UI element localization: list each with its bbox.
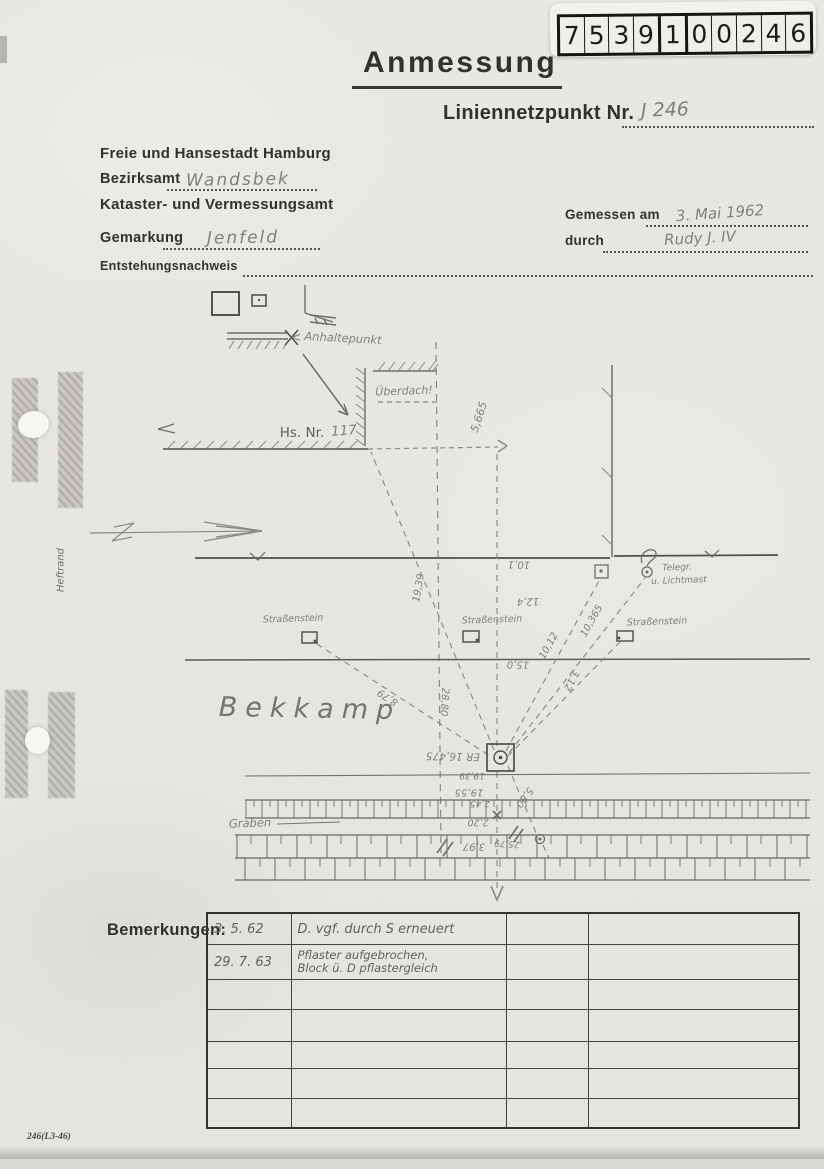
tape-strip [48,692,75,798]
table-row [207,1041,799,1068]
table-row [207,1098,799,1128]
graben-label: Graben [229,815,272,830]
house-number-label: Hs. Nr. [280,425,324,441]
dotted-line [243,261,813,277]
measurement: 10,12 [537,631,561,661]
measurement: 15,0 [507,658,529,669]
remark-text: Block ü. D pflastergleich [298,962,500,975]
dotted-line [163,234,320,250]
remark-text: D. vgf. durch S erneuert [298,922,455,937]
scanner-background [0,1158,824,1169]
measured-by-label: durch [565,233,604,248]
tape-strip [58,372,83,508]
strassenstein-label: Straßenstein [627,615,688,628]
measurement: 5,665 [468,400,490,434]
stamp-digit: 3 [609,17,634,53]
stamp-digit: 6 [786,15,810,51]
point-number-stamp: 7 5 3 9 1 0 0 2 4 6 [557,12,813,57]
measurement: 10,1 [508,558,530,569]
dotted-line [603,237,808,253]
measurement: 2,45 [470,798,490,808]
remark-date: 3. 5. 62 [214,922,264,937]
stamp-digit: 9 [634,16,661,52]
remarks-table: 3. 5. 62 D. vgf. durch S erneuert 29. 7.… [206,912,800,1129]
agency-line2: Kataster- und Vermessungsamt [100,196,333,213]
table-row [207,1009,799,1041]
dotted-line [622,112,814,128]
agency-line1: Freie und Hansestadt Hamburg [100,145,331,162]
dotted-line [646,211,808,227]
measurement: 12,4 [517,595,540,607]
measurement: 10,365 [579,603,606,639]
title-underline [352,86,562,89]
measurement: 25,79 [494,837,520,849]
stamp-digit: 5 [585,17,610,53]
page-title: Anmessung [363,46,557,80]
measurement: 19,55 [455,787,484,798]
telegraph-mast-label2: u. Lichtmast [651,575,707,587]
arrow-left-icon: < [291,331,302,346]
registration-sticker: 7 5 3 9 1 0 0 2 4 6 [550,1,817,58]
entstehung-label: Entstehungsnachweis [100,259,238,273]
scanned-survey-document: 7 5 3 9 1 0 0 2 4 6 Anmessung Liniennetz… [0,0,824,1169]
measurement: 3,97 [463,840,485,851]
stamp-digit: 1 [661,16,688,52]
measurement: 2,20 [467,817,488,828]
remark-text: Pflaster aufgebrochen, [298,949,500,962]
stamp-digit: 4 [761,15,786,51]
point-number-label: Liniennetzpunkt Nr. [443,102,634,125]
ueberdach-label: Überdach! [375,384,433,399]
anhaltepunkt-label: Anhaltepunkt [304,329,382,347]
form-number: 246(L3-46) [27,1132,71,1142]
house-number-value: 117 [331,422,358,440]
strassenstein-label: Straßenstein [462,613,523,626]
measurement: 3,12 [561,668,581,693]
stamp-digit: 0 [687,16,712,52]
measurement: 19,39 [459,770,485,780]
dotted-line [167,175,317,191]
heftrand-label: Heftrand [56,548,67,592]
strassenstein-label: Straßenstein [263,612,324,625]
remark-date: 29. 7. 63 [214,955,272,970]
measurement: 19,39 [411,573,427,603]
stamp-digit: 0 [712,15,737,51]
scan-edge-mark [0,36,7,63]
stamp-digit: 2 [737,15,762,51]
table-row: 3. 5. 62 D. vgf. durch S erneuert [207,913,799,944]
table-row [207,979,799,1009]
table-row [207,1068,799,1098]
stamp-digit: 7 [560,17,585,53]
measurement: 28,80 [438,687,451,716]
punch-hole [25,727,50,754]
street-name-label: Bekkamp [219,692,402,726]
table-row: 29. 7. 63 Pflaster aufgebrochen, Block ü… [207,944,799,979]
telegraph-mast-label: Telegr. [662,562,692,573]
measurement: ER 16,475 [426,750,480,763]
measurement: 5,80 [513,785,535,809]
